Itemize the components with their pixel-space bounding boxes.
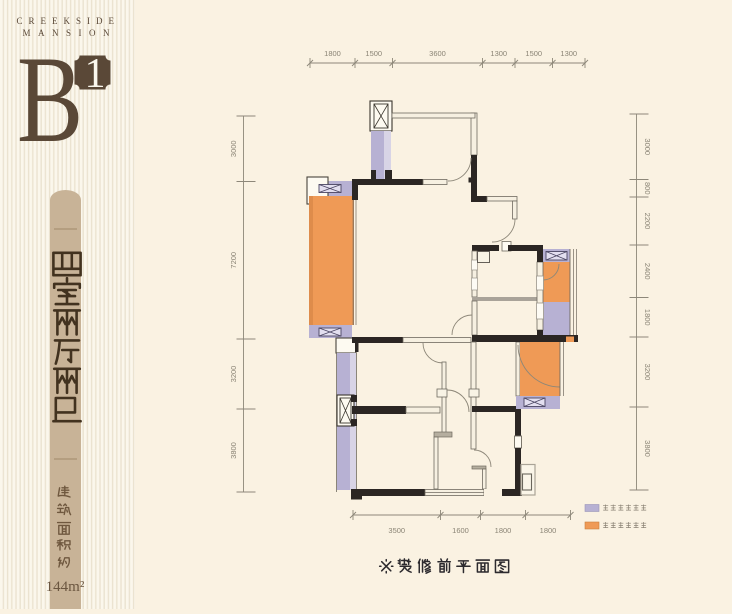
svg-text:3000: 3000 xyxy=(643,138,652,155)
svg-text:CREEKSIDE: CREEKSIDE xyxy=(17,16,121,26)
svg-text:3000: 3000 xyxy=(229,140,238,157)
svg-text:3600: 3600 xyxy=(429,49,446,58)
svg-text:B: B xyxy=(17,32,83,169)
svg-text:1300: 1300 xyxy=(560,49,577,58)
svg-text:3200: 3200 xyxy=(229,366,238,383)
svg-text:1800: 1800 xyxy=(324,49,341,58)
svg-text:800: 800 xyxy=(643,182,652,195)
svg-text:1500: 1500 xyxy=(525,49,542,58)
svg-text:3500: 3500 xyxy=(388,526,405,535)
svg-text:2200: 2200 xyxy=(643,213,652,230)
svg-text:1300: 1300 xyxy=(490,49,507,58)
svg-text:3800: 3800 xyxy=(643,440,652,457)
svg-text:1800: 1800 xyxy=(643,309,652,326)
svg-text:144m²: 144m² xyxy=(46,579,85,595)
svg-text:7200: 7200 xyxy=(229,252,238,269)
svg-text:1800: 1800 xyxy=(540,526,557,535)
svg-text:1500: 1500 xyxy=(365,49,382,58)
svg-text:1800: 1800 xyxy=(495,526,512,535)
svg-text:3800: 3800 xyxy=(229,442,238,459)
svg-text:1600: 1600 xyxy=(452,526,469,535)
svg-text:1: 1 xyxy=(85,51,106,97)
svg-text:3200: 3200 xyxy=(643,364,652,381)
svg-text:2400: 2400 xyxy=(643,263,652,280)
